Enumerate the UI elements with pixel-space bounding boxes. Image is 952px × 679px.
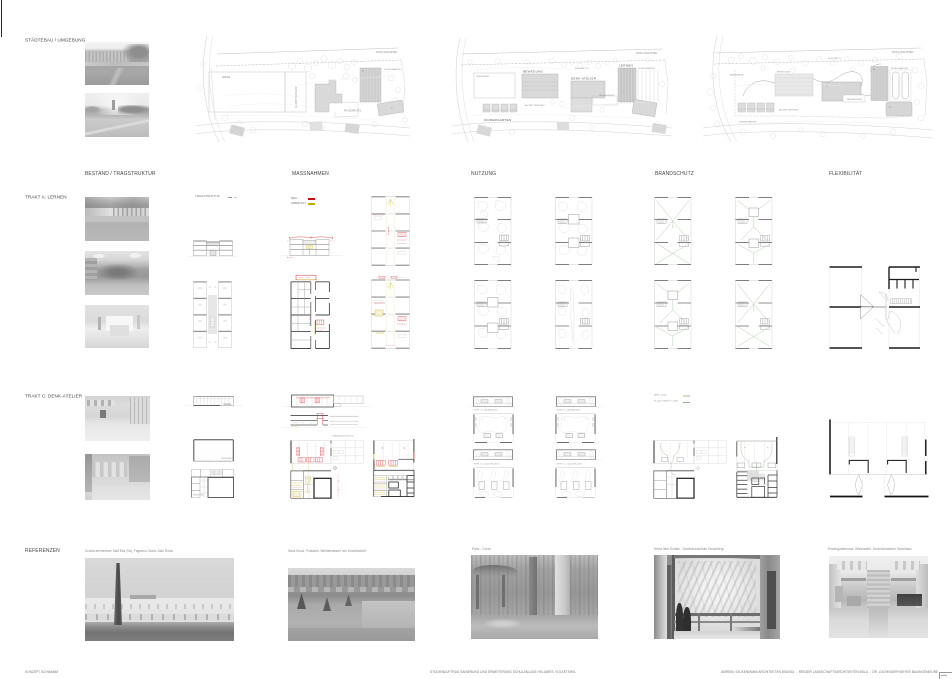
svg-text:SCHULGARTEN: SCHULGARTEN	[891, 67, 908, 70]
svg-text:ALLWETTERPLATZ: ALLWETTERPLATZ	[525, 104, 545, 107]
svg-text:PAUSENPLATZ: PAUSENPLATZ	[344, 110, 361, 113]
svg-text:PAVILLONGARTEN: PAVILLONGARTEN	[892, 51, 914, 54]
svg-text:ALLWETTERPLATZ: ALLWETTERPLATZ	[295, 86, 298, 108]
svg-text:SCHULGARTEN: SCHULGARTEN	[384, 68, 401, 71]
svg-text:WIESE: WIESE	[222, 75, 231, 79]
svg-text:BOSCHETTO: BOSCHETTO	[828, 58, 842, 60]
svg-text:KINDERGARTEN: KINDERGARTEN	[484, 118, 511, 122]
svg-text:BEWEGUNG: BEWEGUNG	[777, 72, 790, 74]
svg-text:PAUSENPLATZ: PAUSENPLATZ	[599, 94, 615, 97]
svg-text:PAVILLONGARTEN: PAVILLONGARTEN	[376, 51, 398, 54]
svg-text:BAUMWIESE: BAUMWIESE	[730, 74, 744, 77]
svg-text:LERNEN: LERNEN	[619, 64, 633, 68]
svg-text:PAVILLONGARTEN: PAVILLONGARTEN	[636, 52, 658, 55]
svg-text:BEWEGUNG: BEWEGUNG	[523, 70, 544, 74]
svg-text:SPORTHALLE: SPORTHALLE	[221, 457, 234, 460]
svg-text:SCHULGARTEN: SCHULGARTEN	[638, 67, 655, 70]
svg-text:PAUSENPLATZ: PAUSENPLATZ	[847, 98, 863, 101]
svg-text:WERKSTATT: WERKSTATT	[193, 493, 205, 496]
svg-text:DENK-ATELIER: DENK-ATELIER	[571, 77, 597, 81]
svg-text:SPIELWIESE: SPIELWIESE	[476, 76, 490, 78]
svg-text:ALLWETTERPLATZ: ALLWETTERPLATZ	[779, 109, 799, 112]
